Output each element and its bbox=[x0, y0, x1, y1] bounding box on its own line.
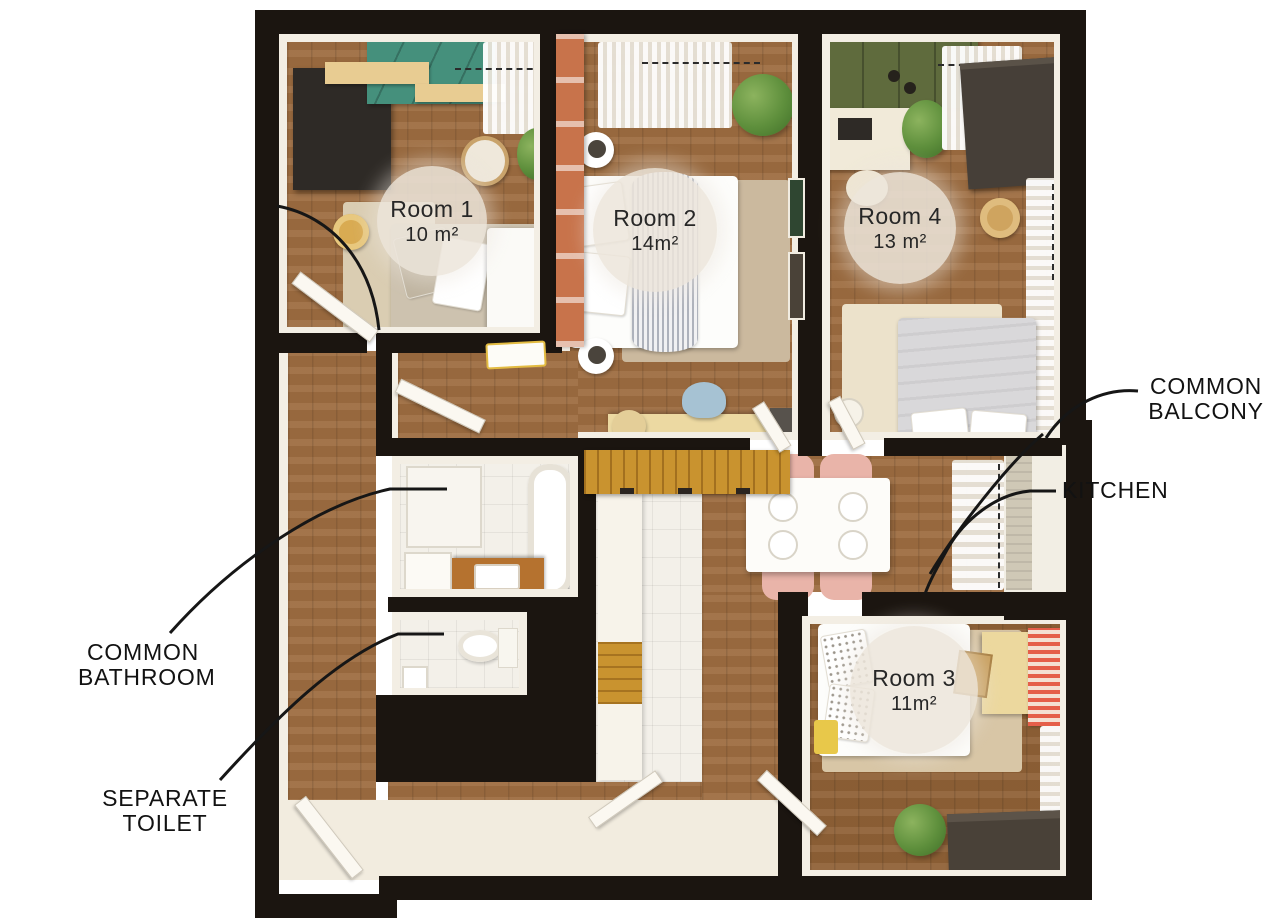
room-2-label: Room 2 14m² bbox=[593, 168, 717, 292]
annotation-common-bathroom: COMMON BATHROOM bbox=[78, 640, 208, 690]
hallway-left-floor bbox=[279, 351, 376, 806]
room-1-name: Room 1 bbox=[390, 195, 474, 224]
wall-frame-icon-2 bbox=[788, 252, 805, 320]
bathroom-shower bbox=[406, 466, 482, 548]
room-4-label: Room 4 13 m² bbox=[844, 172, 956, 284]
wall-toilet-right bbox=[527, 612, 596, 702]
floor-plan-canvas: Room 1 10 m² Room 2 14m² Room 4 13 m² Ro… bbox=[0, 0, 1280, 921]
room1-shelf-wood bbox=[325, 62, 429, 84]
room-4-name: Room 4 bbox=[858, 202, 942, 231]
room2-plant-icon bbox=[732, 74, 794, 136]
room1-blanket bbox=[487, 228, 542, 335]
toilet-bowl bbox=[458, 630, 502, 662]
room2-stool bbox=[612, 410, 646, 440]
annotation-common-balcony-line1: COMMON bbox=[1136, 374, 1276, 399]
room-3-area: 11m² bbox=[891, 693, 937, 716]
toilet-tank bbox=[498, 628, 518, 668]
room2-accent-shelf-terracotta bbox=[556, 34, 584, 347]
toilet-room-floor bbox=[392, 612, 527, 696]
room3-rug-red bbox=[1028, 628, 1068, 726]
annotation-kitchen-line1: KITCHEN bbox=[1062, 478, 1169, 503]
room4-laptop bbox=[838, 118, 872, 140]
room-2-area: 14m² bbox=[631, 233, 679, 256]
room1-curtain bbox=[483, 42, 542, 134]
dining-plate bbox=[768, 492, 798, 522]
room-2-name: Room 2 bbox=[613, 204, 697, 233]
wall-room1-bottom-left bbox=[255, 333, 367, 353]
room4-pillow-2 bbox=[969, 410, 1028, 440]
room1-stool bbox=[333, 214, 369, 250]
room3-plant-icon bbox=[894, 804, 946, 856]
wall-top bbox=[255, 10, 1086, 34]
annotation-common-bathroom-line2: BATHROOM bbox=[78, 665, 208, 690]
wall-left bbox=[255, 10, 279, 918]
wall-bottom bbox=[379, 876, 1092, 900]
annotation-separate-toilet: SEPARATE TOILET bbox=[98, 786, 232, 836]
wall-bathroom-top bbox=[388, 438, 580, 456]
annotation-kitchen: KITCHEN bbox=[1062, 478, 1169, 503]
room-1-area: 10 m² bbox=[405, 224, 459, 247]
room1-curtain-rod bbox=[455, 68, 542, 70]
room3-blanket-yellow bbox=[814, 720, 838, 754]
bathroom-washing-machine bbox=[404, 552, 452, 596]
wall-right-upper bbox=[1060, 10, 1086, 445]
annotation-common-bathroom-line1: COMMON bbox=[78, 640, 208, 665]
room-3-label: Room 3 11m² bbox=[850, 626, 978, 754]
wall-room3-left bbox=[778, 592, 802, 880]
annotation-separate-toilet-line1: SEPARATE bbox=[98, 786, 232, 811]
kitchen-cabinet-wood bbox=[598, 642, 642, 704]
room3-dresser bbox=[947, 810, 1068, 878]
room4-wardrobe-dark bbox=[960, 57, 1062, 190]
wall-room3-top-right bbox=[862, 592, 1068, 616]
room4-basket bbox=[980, 198, 1020, 238]
room2-lamp-icon bbox=[588, 140, 606, 158]
room-3-name: Room 3 bbox=[872, 664, 956, 693]
doormat-yellow bbox=[485, 340, 546, 369]
room1-chair bbox=[461, 136, 509, 186]
kitchen-cabinets bbox=[598, 494, 642, 780]
wall-bottom-left bbox=[255, 894, 397, 918]
wall-balcony-right bbox=[1066, 420, 1092, 620]
room-1-label: Room 1 10 m² bbox=[377, 166, 487, 276]
annotation-common-balcony: COMMON BALCONY bbox=[1136, 374, 1276, 424]
annotation-separate-toilet-line2: TOILET bbox=[98, 811, 232, 836]
toilet-sink bbox=[402, 666, 428, 694]
room4-pillow bbox=[910, 407, 969, 440]
annotation-common-balcony-line2: BALCONY bbox=[1136, 399, 1276, 424]
room2-curtain-rod bbox=[642, 62, 760, 64]
room1-plant-icon bbox=[517, 128, 542, 180]
wall-bath-toilet bbox=[388, 597, 578, 612]
wall-frame-icon bbox=[788, 178, 805, 238]
dining-plate-3 bbox=[768, 530, 798, 560]
wall-right-lower bbox=[1066, 596, 1092, 900]
room2-desk-chair bbox=[682, 382, 726, 418]
balcony-door-curtain bbox=[952, 460, 1004, 590]
room4-wardrobe-handle-icon bbox=[888, 70, 900, 82]
bathroom-floor bbox=[392, 456, 578, 597]
room4-curtain-rod-right bbox=[1052, 184, 1054, 280]
bathroom-sink bbox=[474, 564, 520, 590]
dining-plate-4 bbox=[838, 530, 868, 560]
room2-lamp-icon-2 bbox=[588, 346, 606, 364]
wall-black-mass bbox=[376, 695, 596, 782]
room4-wardrobe-handle-icon-2 bbox=[904, 82, 916, 94]
balcony-door-rod bbox=[998, 464, 1000, 588]
wall-mid-right bbox=[884, 438, 1062, 456]
balcony-deck bbox=[1006, 452, 1032, 590]
room2-curtain bbox=[598, 42, 732, 128]
dining-plate-2 bbox=[838, 492, 868, 522]
room-4-area: 13 m² bbox=[873, 231, 927, 254]
kitchen-sink-handles bbox=[620, 488, 770, 494]
